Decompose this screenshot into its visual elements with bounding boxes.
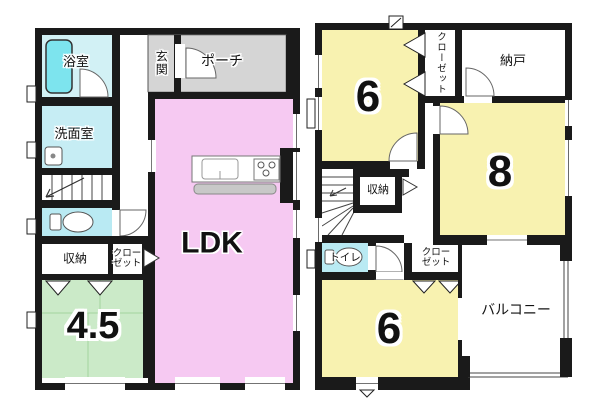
storeroom-label: 納戸 xyxy=(500,54,526,68)
toilet-icon xyxy=(50,212,93,232)
closet-1f-label: クローゼット xyxy=(112,249,142,269)
room6-top-label: 6 xyxy=(356,74,380,120)
wall-vent-tabs-2f xyxy=(307,99,315,268)
storage-1f-label: 収納 xyxy=(63,253,87,266)
tatami-size-label: 4.5 xyxy=(67,307,120,347)
washroom-label: 洗面室 xyxy=(54,127,93,141)
vent-mark xyxy=(360,390,374,397)
porch-label: ポーチ xyxy=(201,54,243,69)
closet-bottom-label: クローゼット xyxy=(421,248,451,268)
floor-plan-canvas: 浴室 洗面室 玄関 ポーチ LDK 収納 クローゼット 4.5 6 クローゼット… xyxy=(0,0,600,407)
ldk-label: LDK xyxy=(181,227,243,259)
storage-2f-label: 収納 xyxy=(367,185,389,197)
roof-vent-mark xyxy=(389,16,403,29)
closet-top-label: クローゼット xyxy=(435,32,445,95)
toilet-2f-label: トイレ xyxy=(329,252,361,263)
bath-label: 浴室 xyxy=(63,55,89,69)
room8-label: 8 xyxy=(488,149,512,195)
balcony-label: バルコニー xyxy=(481,303,551,318)
wall-vent-tabs-1f xyxy=(27,86,36,328)
stove-icon xyxy=(254,159,279,180)
room6-bottom-label: 6 xyxy=(377,306,401,352)
entrance-label: 玄関 xyxy=(155,50,168,76)
